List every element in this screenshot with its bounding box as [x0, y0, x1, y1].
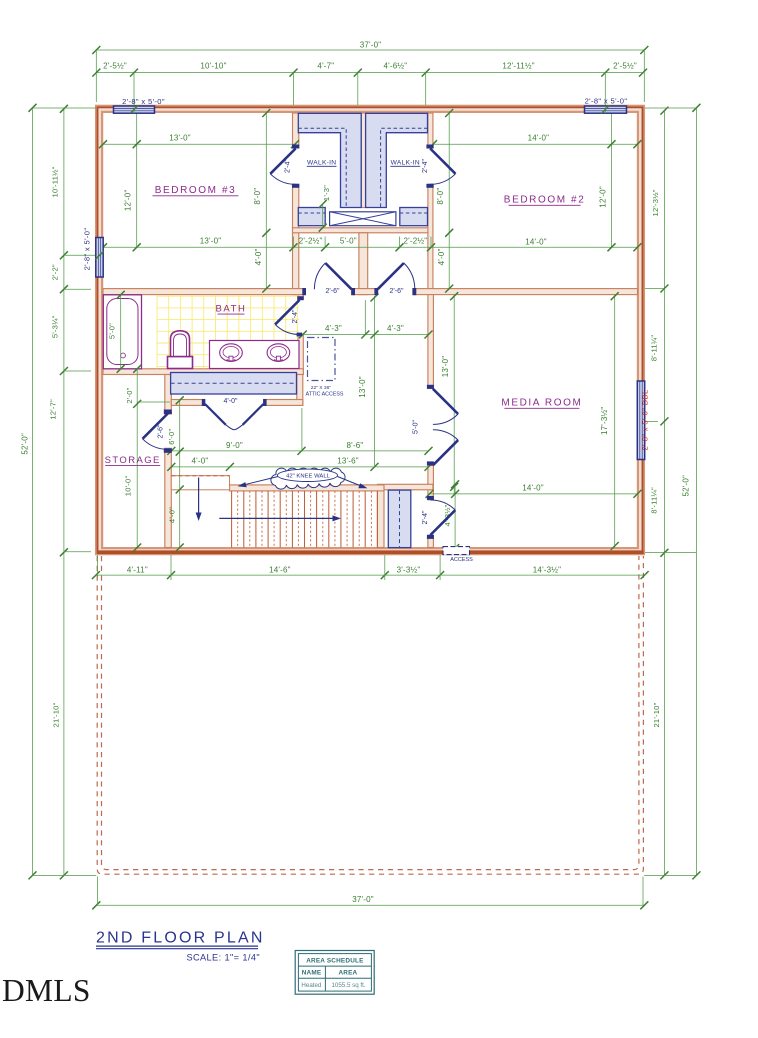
svg-text:8'-6": 8'-6": [347, 441, 364, 450]
svg-text:AREA SCHEDULE: AREA SCHEDULE: [306, 957, 364, 964]
svg-text:STORAGE: STORAGE: [105, 455, 161, 466]
svg-text:2'-4": 2'-4": [285, 159, 292, 173]
svg-text:4'-0": 4'-0": [254, 248, 263, 265]
svg-text:BATH: BATH: [215, 304, 246, 315]
svg-text:WALK-IN: WALK-IN: [307, 159, 336, 166]
svg-text:21'-10": 21'-10": [52, 702, 61, 727]
svg-text:2'-6": 2'-6": [326, 288, 340, 295]
svg-text:14'-3½": 14'-3½": [533, 566, 561, 575]
svg-text:2'-6": 2'-6": [158, 424, 165, 438]
svg-text:4'-3": 4'-3": [387, 324, 404, 333]
svg-text:13'-0": 13'-0": [200, 237, 222, 246]
svg-text:4'-0": 4'-0": [192, 456, 209, 465]
svg-text:37'-0": 37'-0": [360, 40, 382, 49]
svg-text:2'-5½": 2'-5½": [103, 62, 127, 71]
svg-text:4'-0": 4'-0": [224, 398, 238, 405]
svg-text:Heated: Heated: [301, 982, 322, 989]
svg-text:2'-8" x 5'-0" DBL: 2'-8" x 5'-0" DBL: [641, 389, 650, 450]
svg-text:13'-0": 13'-0": [169, 134, 191, 143]
svg-text:14'-0": 14'-0": [525, 238, 547, 247]
svg-text:BEDROOM #3: BEDROOM #3: [155, 185, 237, 196]
svg-text:MEDIA ROOM: MEDIA ROOM: [501, 398, 582, 409]
svg-text:8'-0": 8'-0": [253, 188, 262, 205]
svg-text:2'-8" x 5'-0": 2'-8" x 5'-0": [122, 97, 165, 106]
svg-text:2'-2½": 2'-2½": [299, 237, 323, 246]
svg-text:5'-3¼": 5'-3¼": [51, 315, 60, 338]
svg-text:12'-11½": 12'-11½": [502, 62, 535, 71]
svg-text:2'-2": 2'-2": [51, 264, 60, 280]
svg-text:3'-3½": 3'-3½": [397, 566, 421, 575]
svg-text:12'-0": 12'-0": [599, 186, 608, 208]
svg-text:42" KNEE WALL: 42" KNEE WALL: [286, 474, 331, 480]
svg-text:8'-11¼": 8'-11¼": [650, 487, 659, 514]
svg-text:13'-0": 13'-0": [441, 356, 450, 378]
svg-text:9'-0": 9'-0": [226, 441, 243, 450]
svg-text:10'-0": 10'-0": [124, 476, 133, 497]
svg-text:10'-10": 10'-10": [200, 62, 226, 71]
svg-text:4'-7": 4'-7": [317, 62, 334, 71]
svg-text:4'-3": 4'-3": [325, 324, 342, 333]
svg-text:BEDROOM #2: BEDROOM #2: [504, 195, 586, 206]
svg-text:5'-0": 5'-0": [340, 237, 357, 246]
svg-text:SCALE: 1"= 1/4": SCALE: 1"= 1/4": [186, 952, 260, 962]
svg-text:22" X 36": 22" X 36": [311, 385, 332, 391]
svg-text:2'-5½": 2'-5½": [613, 62, 637, 71]
svg-text:13'-6": 13'-6": [337, 456, 359, 465]
svg-text:5'-0": 5'-0": [108, 323, 117, 339]
svg-text:2'-8" x 5'-0": 2'-8" x 5'-0": [585, 97, 628, 106]
svg-text:52'-0": 52'-0": [682, 475, 691, 497]
svg-text:AREA: AREA: [338, 970, 357, 977]
svg-text:NAME: NAME: [302, 970, 322, 977]
svg-text:12'-3½": 12'-3½": [651, 189, 660, 216]
svg-text:4'-0": 4'-0": [437, 248, 446, 265]
svg-text:WALK-IN: WALK-IN: [391, 159, 420, 166]
svg-text:8'-11¼": 8'-11¼": [650, 335, 659, 362]
svg-text:2'-0": 2'-0": [125, 387, 134, 403]
svg-text:52'-0": 52'-0": [21, 433, 30, 455]
svg-text:5'-0": 5'-0": [413, 420, 420, 434]
svg-text:2ND FLOOR PLAN: 2ND FLOOR PLAN: [96, 930, 265, 947]
svg-text:8'-0": 8'-0": [436, 188, 445, 205]
svg-text:4'-6½": 4'-6½": [383, 62, 407, 71]
svg-text:2'-4": 2'-4": [422, 510, 429, 524]
svg-text:37'-0": 37'-0": [352, 895, 374, 904]
svg-text:ACCESS: ACCESS: [450, 557, 473, 563]
svg-text:4'-0": 4'-0": [167, 507, 176, 523]
svg-text:10'-11½": 10'-11½": [51, 166, 60, 197]
svg-text:1'-3": 1'-3": [322, 185, 331, 201]
svg-text:2'-8" x 5'-0": 2'-8" x 5'-0": [83, 228, 92, 271]
svg-text:12'-7": 12'-7": [49, 399, 58, 420]
svg-text:17'-3½": 17'-3½": [600, 407, 609, 435]
svg-text:2'-2½": 2'-2½": [403, 237, 427, 246]
svg-text:21'-10": 21'-10": [652, 702, 661, 727]
svg-text:1055.5 sq ft.: 1055.5 sq ft.: [331, 982, 365, 989]
svg-text:14'-0": 14'-0": [528, 134, 550, 143]
svg-text:ATTIC ACCESS: ATTIC ACCESS: [306, 392, 344, 398]
svg-text:4'-11": 4'-11": [127, 566, 148, 575]
svg-text:14'-0": 14'-0": [522, 483, 544, 492]
svg-text:6'-0": 6'-0": [167, 429, 176, 445]
svg-text:13'-0": 13'-0": [358, 376, 367, 398]
svg-text:2'-4": 2'-4": [422, 159, 429, 173]
svg-text:14'-6": 14'-6": [269, 566, 291, 575]
svg-text:12'-0": 12'-0": [123, 190, 132, 212]
svg-text:DMLS: DMLS: [2, 973, 91, 1008]
svg-text:2'-4": 2'-4": [292, 309, 299, 323]
svg-text:2'-6": 2'-6": [390, 288, 404, 295]
